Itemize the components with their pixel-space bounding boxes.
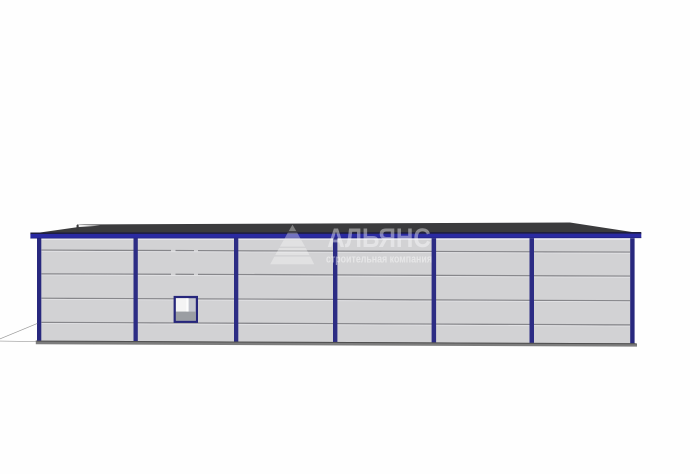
svg-text:строительная компания: строительная компания [326, 253, 432, 265]
svg-text:АЛЬЯНС: АЛЬЯНС [327, 223, 431, 253]
